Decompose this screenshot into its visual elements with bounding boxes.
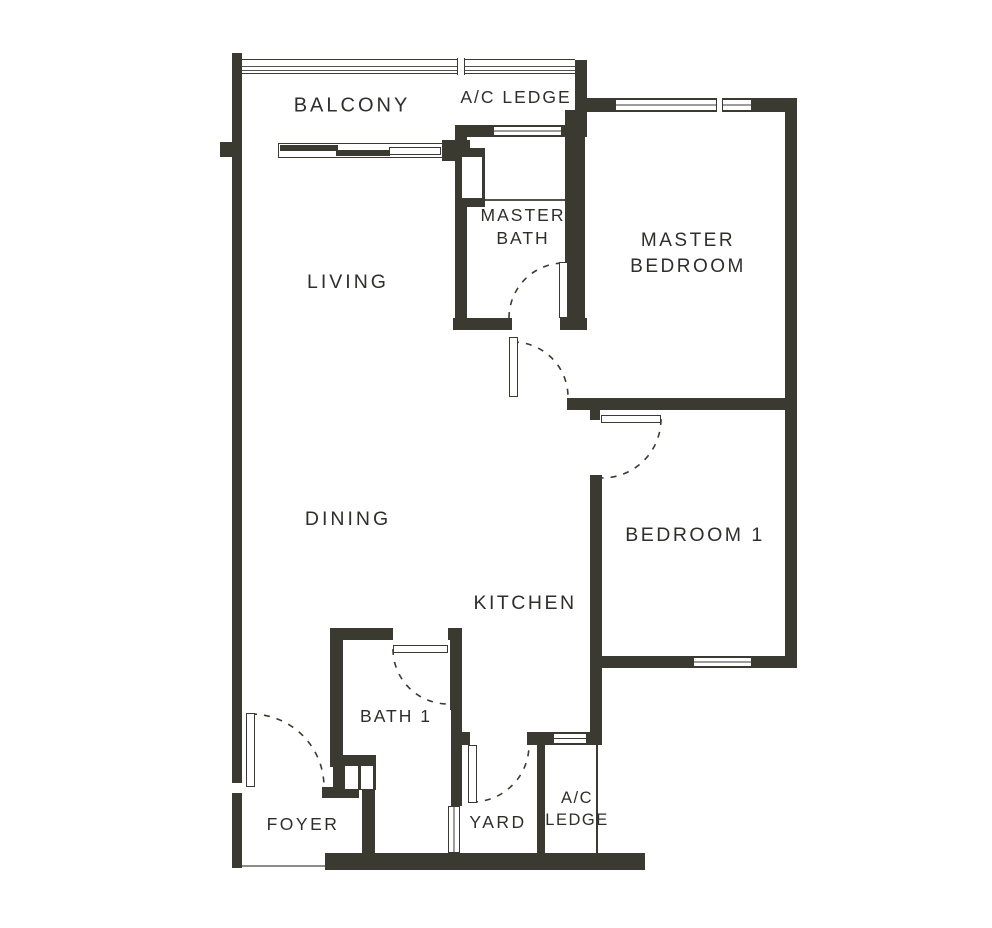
room-label-line: A/C LEDGE xyxy=(460,86,571,109)
room-label-line: KITCHEN xyxy=(473,591,576,616)
master-bedroom-door-arc xyxy=(513,342,568,397)
room-label-bedroom-1: BEDROOM 1 xyxy=(625,523,765,548)
room-label-line: YARD xyxy=(469,811,526,834)
room-label-line: BEDROOM 1 xyxy=(625,523,765,548)
room-label-living: LIVING xyxy=(307,270,389,295)
yard-door-leaf xyxy=(468,745,477,803)
master-bath-door-arc xyxy=(509,263,564,318)
room-label-line: MASTER xyxy=(481,204,566,227)
room-label-line: LIVING xyxy=(307,270,389,295)
room-label-kitchen: KITCHEN xyxy=(473,591,576,616)
yard-door-arc xyxy=(472,745,529,802)
room-label-master-bath: MASTERBATH xyxy=(481,204,566,250)
room-label-line: BATH 1 xyxy=(360,705,432,728)
room-label-line: LEDGE xyxy=(545,809,608,831)
bedroom1-door-leaf xyxy=(601,415,661,423)
bath1-door-leaf xyxy=(393,645,448,653)
room-label-dining: DINING xyxy=(305,507,391,532)
entry-door-leaf xyxy=(246,713,255,787)
room-label-foyer: FOYER xyxy=(267,813,340,836)
master-bath-door-leaf xyxy=(559,262,568,318)
sliding-door-panel-1 xyxy=(280,145,338,151)
room-label-ac-ledge-bottom: A/CLEDGE xyxy=(545,787,608,831)
sliding-door-panel-3 xyxy=(389,147,441,155)
room-label-bath-1: BATH 1 xyxy=(360,705,432,728)
post-railing-divider xyxy=(457,58,465,75)
room-label-line: MASTER xyxy=(630,228,746,254)
sliding-door-panel-2 xyxy=(336,150,390,156)
door-swing-arcs xyxy=(0,0,992,928)
room-label-line: BATH xyxy=(481,227,566,250)
entry-door-arc xyxy=(251,714,324,787)
room-label-line: A/C xyxy=(545,787,608,809)
room-label-line: BALCONY xyxy=(294,94,411,119)
room-label-balcony: BALCONY xyxy=(294,94,411,119)
post-mbr-window-divider xyxy=(716,98,723,112)
room-label-line: FOYER xyxy=(267,813,340,836)
bath1-door-arc xyxy=(393,649,448,704)
room-label-yard: YARD xyxy=(469,811,526,834)
bedroom1-door-arc xyxy=(601,419,661,478)
room-label-ac-ledge-top: A/C LEDGE xyxy=(460,86,571,109)
room-label-line: BEDROOM xyxy=(630,254,746,280)
master-bedroom-door-leaf xyxy=(509,337,518,397)
room-label-line: DINING xyxy=(305,507,391,532)
floorplan-canvas: BALCONYA/C LEDGEMASTERBATHMASTERBEDROOML… xyxy=(0,0,992,928)
room-label-master-bedroom: MASTERBEDROOM xyxy=(630,228,746,280)
